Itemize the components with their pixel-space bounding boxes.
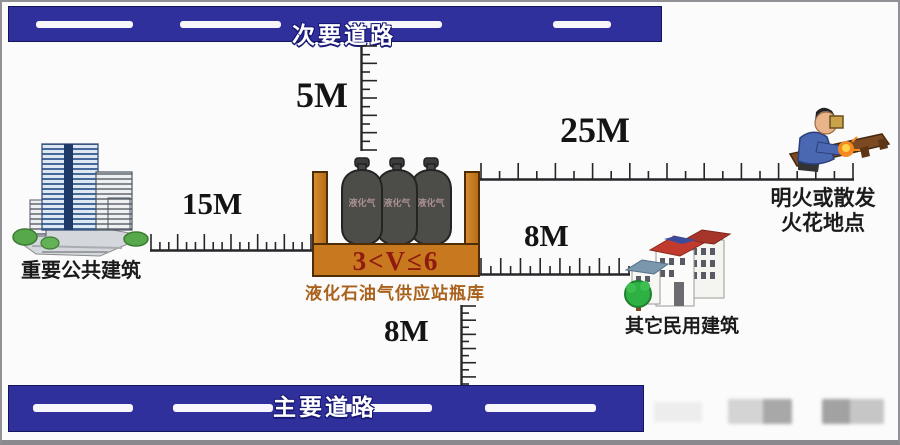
lane-marking bbox=[36, 21, 133, 28]
distance-label-8m-bottom: 8M bbox=[384, 313, 429, 349]
watermark-block bbox=[654, 402, 702, 422]
distance-label-25m: 25M bbox=[560, 109, 630, 151]
flame-source-label-line1: 明火或散发 bbox=[758, 186, 888, 211]
lane-marking bbox=[180, 21, 281, 28]
distance-label-8m-right: 8M bbox=[524, 218, 569, 254]
distance-label-15m: 15M bbox=[182, 186, 242, 222]
secondary-road: 次要道路 bbox=[8, 6, 662, 42]
distance-ruler-5m bbox=[360, 45, 379, 156]
svg-text:液化气: 液化气 bbox=[417, 197, 444, 208]
flame-source-label-line2: 火花地点 bbox=[758, 211, 888, 236]
svg-text:液化气: 液化气 bbox=[348, 197, 375, 208]
station-name-label: 液化石油气供应站瓶库 bbox=[290, 279, 500, 304]
secondary-road-label: 次要道路 bbox=[292, 16, 396, 50]
flame-source-illustration bbox=[742, 102, 892, 188]
distance-ruler-15m bbox=[150, 232, 312, 257]
gas-cylinder: 液化气 bbox=[342, 158, 382, 245]
lane-marking bbox=[33, 404, 133, 412]
distance-label-5m: 5M bbox=[296, 74, 348, 116]
public-building-label: 重要公共建筑 bbox=[8, 254, 154, 283]
main-road-label: 主要道路 bbox=[273, 388, 377, 422]
watermark-block bbox=[822, 399, 884, 424]
svg-text:液化气: 液化气 bbox=[383, 197, 410, 208]
main-road: 主要道路 bbox=[8, 385, 644, 432]
lane-marking bbox=[173, 404, 273, 412]
safety-distance-diagram: 次要道路 主要道路 5M 15M 25M 8M 8M bbox=[0, 0, 900, 445]
public-building-illustration bbox=[12, 142, 150, 258]
watermark-block bbox=[728, 399, 792, 424]
flame-source-label: 明火或散发 火花地点 bbox=[758, 186, 888, 236]
lane-marking bbox=[485, 404, 596, 412]
civil-building-illustration bbox=[622, 226, 737, 312]
distance-ruler-8m-right bbox=[480, 256, 630, 281]
lpg-station-illustration: 液化气 液化气 液化气 3<V≤6 bbox=[305, 148, 487, 284]
distance-ruler-8m-bottom bbox=[460, 305, 478, 390]
lane-marking bbox=[553, 21, 611, 28]
volume-label: 3<V≤6 bbox=[353, 246, 440, 276]
civil-building-label: 其它民用建筑 bbox=[618, 311, 746, 338]
